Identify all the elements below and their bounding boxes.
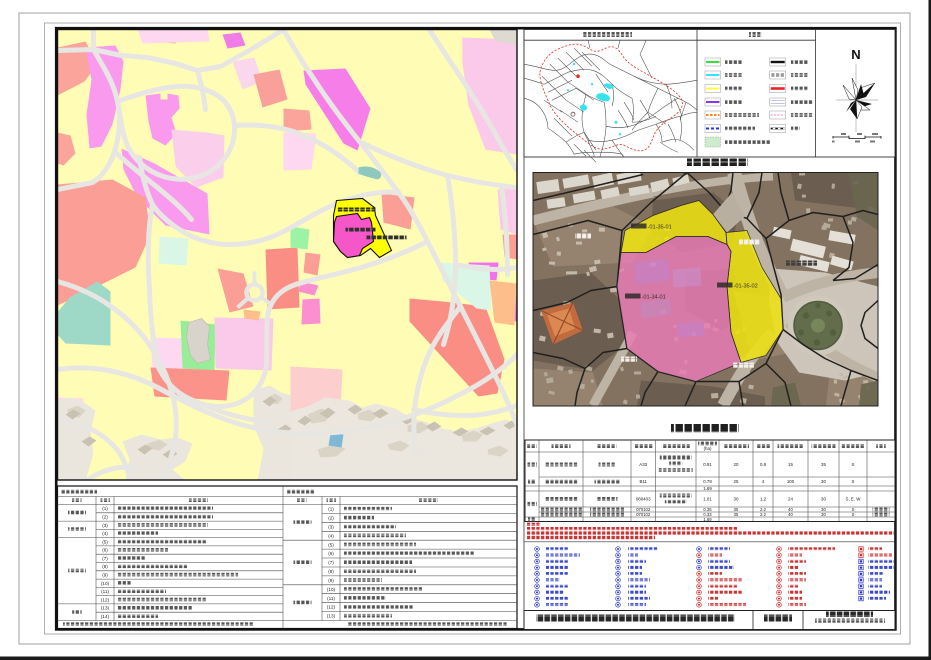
svg-text:40: 40 — [788, 512, 793, 517]
svg-text:20: 20 — [734, 462, 739, 467]
svg-text:1.69: 1.69 — [703, 486, 712, 491]
svg-text:(14): (14) — [101, 614, 110, 619]
svg-text:25: 25 — [734, 479, 739, 484]
svg-text:(3): (3) — [328, 524, 334, 529]
svg-text:S: S — [852, 479, 855, 484]
svg-text:35: 35 — [734, 512, 739, 517]
svg-text:(9): (9) — [328, 578, 334, 583]
svg-text:(2): (2) — [328, 516, 334, 521]
svg-text:(4): (4) — [328, 533, 334, 538]
svg-text:1.01: 1.01 — [703, 497, 712, 502]
svg-text:N: N — [851, 47, 860, 62]
svg-text:(2): (2) — [102, 515, 108, 520]
svg-text:(5): (5) — [328, 542, 334, 547]
svg-text:(1): (1) — [102, 506, 108, 511]
svg-text:30: 30 — [821, 479, 826, 484]
svg-text:100: 100 — [787, 479, 795, 484]
svg-text:(12): (12) — [327, 605, 336, 610]
svg-text:0.8: 0.8 — [760, 462, 767, 467]
svg-text:(1): (1) — [328, 507, 334, 512]
svg-text:070102: 070102 — [636, 512, 651, 517]
svg-text:15: 15 — [788, 462, 793, 467]
svg-text:(13): (13) — [101, 606, 110, 611]
svg-text:(ha): (ha) — [704, 446, 712, 451]
svg-text:24: 24 — [788, 497, 793, 502]
svg-text:(10): (10) — [327, 587, 336, 592]
svg-text:A33: A33 — [639, 462, 647, 467]
svg-text:0.91: 0.91 — [703, 462, 712, 467]
svg-text:(11): (11) — [327, 596, 335, 601]
svg-text:(8): (8) — [328, 569, 334, 574]
svg-text:(13): (13) — [327, 614, 336, 619]
svg-text:(6): (6) — [102, 548, 108, 553]
svg-text:(4): (4) — [102, 531, 108, 536]
svg-text:(12): (12) — [101, 597, 110, 602]
svg-text:S, E, W: S, E, W — [846, 497, 862, 502]
svg-text:(9): (9) — [102, 573, 108, 578]
svg-text:(11): (11) — [101, 589, 109, 594]
svg-text:S: S — [852, 512, 855, 517]
svg-text:1.69: 1.69 — [703, 517, 712, 522]
svg-text:35: 35 — [821, 462, 826, 467]
svg-text:(6): (6) — [328, 551, 334, 556]
svg-text:080403: 080403 — [636, 497, 651, 502]
svg-text:(8): (8) — [102, 564, 108, 569]
svg-text:S: S — [852, 462, 855, 467]
svg-text:(7): (7) — [102, 556, 108, 561]
svg-text:(3): (3) — [102, 523, 108, 528]
svg-text:(10): (10) — [101, 581, 110, 586]
svg-text:(7): (7) — [328, 560, 334, 565]
svg-text:1.2: 1.2 — [760, 497, 767, 502]
svg-text:B11: B11 — [639, 479, 647, 484]
svg-text:30: 30 — [734, 497, 739, 502]
svg-text:30: 30 — [821, 497, 826, 502]
svg-text:0.78: 0.78 — [703, 479, 712, 484]
svg-text:(5): (5) — [102, 539, 108, 544]
svg-text:30: 30 — [821, 512, 826, 517]
svg-text:2.2: 2.2 — [760, 512, 766, 517]
